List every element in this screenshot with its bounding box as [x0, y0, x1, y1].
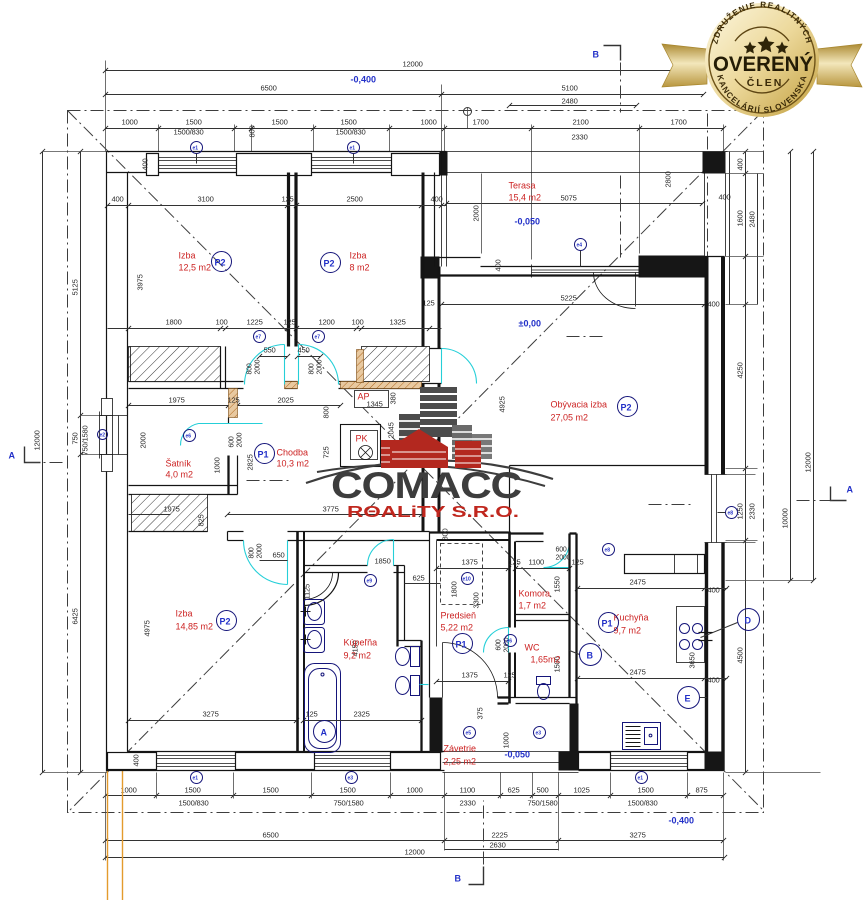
svg-text:P1: P1	[258, 450, 269, 460]
svg-text:450: 450	[298, 346, 310, 355]
svg-text:2480: 2480	[748, 211, 757, 227]
svg-text:14,85 m2: 14,85 m2	[176, 622, 214, 632]
svg-text:1600: 1600	[736, 210, 745, 226]
svg-text:1500: 1500	[340, 786, 356, 795]
svg-text:1375: 1375	[462, 671, 478, 680]
svg-text:800: 800	[322, 406, 331, 418]
svg-text:RΘALiTY S.R.O.: RΘALiTY S.R.O.	[347, 504, 519, 521]
svg-text:1800: 1800	[166, 318, 182, 327]
svg-text:3275: 3275	[203, 710, 219, 719]
svg-text:1550: 1550	[553, 576, 562, 592]
svg-text:B: B	[587, 651, 594, 661]
svg-text:12000: 12000	[403, 60, 423, 69]
svg-text:1225: 1225	[247, 318, 263, 327]
svg-text:1975: 1975	[164, 505, 180, 514]
svg-text:4,0 m2: 4,0 m2	[166, 470, 194, 480]
svg-text:P2: P2	[215, 258, 226, 268]
svg-text:Terasa: Terasa	[509, 181, 536, 191]
svg-text:6500: 6500	[263, 831, 279, 840]
svg-text:P2: P2	[324, 259, 335, 269]
svg-text:Komora: Komora	[519, 589, 551, 599]
svg-text:825: 825	[197, 514, 206, 526]
svg-text:1500/830: 1500/830	[628, 799, 658, 808]
svg-text:4250: 4250	[736, 362, 745, 378]
svg-text:2025: 2025	[278, 396, 294, 405]
svg-text:e7: e7	[256, 335, 262, 341]
svg-text:875: 875	[696, 786, 708, 795]
svg-text:100: 100	[352, 318, 364, 327]
svg-text:400: 400	[736, 158, 745, 170]
svg-text:e7: e7	[315, 335, 321, 341]
svg-text:5100: 5100	[562, 84, 578, 93]
svg-text:2000: 2000	[139, 432, 148, 448]
svg-text:B: B	[593, 50, 600, 60]
svg-text:2475: 2475	[630, 578, 646, 587]
svg-text:e4: e4	[577, 243, 583, 249]
svg-text:Izba: Izba	[179, 251, 196, 261]
svg-text:e2: e2	[100, 433, 106, 439]
svg-text:1,65m2: 1,65m2	[531, 655, 561, 665]
svg-text:4925: 4925	[498, 396, 507, 412]
svg-text:5225: 5225	[561, 294, 577, 303]
svg-text:1500: 1500	[638, 786, 654, 795]
svg-text:2000: 2000	[472, 205, 481, 221]
svg-text:750/1580: 750/1580	[334, 799, 364, 808]
svg-text:COMACC: COMACC	[331, 465, 521, 506]
svg-text:1000: 1000	[502, 732, 511, 748]
svg-text:650: 650	[273, 551, 285, 560]
svg-text:2480: 2480	[562, 97, 578, 106]
svg-text:WC: WC	[525, 643, 540, 653]
svg-text:5125: 5125	[71, 279, 80, 295]
svg-text:2325: 2325	[354, 710, 370, 719]
svg-text:125: 125	[282, 195, 294, 204]
svg-text:-0,050: -0,050	[505, 750, 531, 760]
svg-text:P1: P1	[602, 619, 613, 629]
svg-text:4975: 4975	[143, 620, 152, 636]
svg-text:1500: 1500	[263, 786, 279, 795]
svg-text:e1: e1	[193, 146, 199, 152]
svg-text:2000: 2000	[237, 432, 244, 447]
svg-text:1000: 1000	[213, 457, 222, 473]
svg-text:1125: 1125	[303, 584, 312, 600]
svg-text:600: 600	[229, 436, 236, 447]
svg-text:1500: 1500	[272, 118, 288, 127]
svg-text:2330: 2330	[460, 799, 476, 808]
svg-text:1500/830: 1500/830	[174, 128, 204, 137]
svg-text:1000: 1000	[407, 786, 423, 795]
svg-text:2045: 2045	[387, 422, 396, 438]
svg-text:5,22 m2: 5,22 m2	[441, 623, 474, 633]
svg-text:300: 300	[441, 528, 450, 540]
svg-text:12000: 12000	[804, 452, 813, 472]
svg-text:e1: e1	[193, 776, 199, 782]
svg-text:15,4 m2: 15,4 m2	[509, 193, 542, 203]
svg-text:375: 375	[476, 707, 485, 719]
svg-text:12000: 12000	[33, 430, 42, 450]
svg-text:1700: 1700	[671, 118, 687, 127]
svg-text:E: E	[685, 694, 691, 704]
svg-text:2800: 2800	[664, 171, 673, 187]
svg-text:±0,00: ±0,00	[519, 319, 541, 329]
svg-text:1325: 1325	[390, 318, 406, 327]
svg-text:2000: 2000	[317, 359, 324, 374]
svg-text:6425: 6425	[71, 608, 80, 624]
svg-text:2475: 2475	[630, 668, 646, 677]
svg-text:3100: 3100	[198, 195, 214, 204]
svg-text:3650: 3650	[688, 652, 697, 668]
svg-text:400: 400	[719, 193, 731, 202]
svg-text:10,3 m2: 10,3 m2	[277, 459, 310, 469]
svg-text:625: 625	[508, 786, 520, 795]
svg-text:125: 125	[509, 558, 521, 567]
svg-text:500: 500	[537, 786, 549, 795]
svg-text:1000: 1000	[122, 118, 138, 127]
svg-text:750/1580: 750/1580	[528, 799, 558, 808]
svg-text:2000: 2000	[255, 359, 262, 374]
svg-text:Chodba: Chodba	[277, 448, 309, 458]
svg-text:400: 400	[141, 158, 150, 170]
svg-text:Obývacia izba: Obývacia izba	[551, 400, 608, 410]
svg-text:2,25 m2: 2,25 m2	[444, 757, 477, 767]
svg-text:125: 125	[504, 671, 516, 680]
svg-text:380: 380	[389, 392, 398, 404]
svg-text:B: B	[455, 874, 462, 884]
svg-text:27,05 m2: 27,05 m2	[551, 413, 589, 423]
svg-text:1,7 m2: 1,7 m2	[519, 601, 547, 611]
svg-text:Kúpeľňa: Kúpeľňa	[344, 638, 378, 648]
svg-text:600: 600	[496, 639, 503, 650]
svg-text:Šatník: Šatník	[166, 459, 192, 469]
svg-text:750/1580: 750/1580	[81, 425, 90, 455]
svg-text:400: 400	[708, 300, 720, 309]
svg-text:400: 400	[708, 676, 720, 685]
svg-text:1375: 1375	[462, 558, 478, 567]
svg-text:1500: 1500	[186, 118, 202, 127]
svg-text:1800: 1800	[450, 581, 459, 597]
svg-text:PK: PK	[356, 434, 368, 444]
svg-text:e6: e6	[186, 434, 192, 440]
svg-text:550: 550	[264, 346, 276, 355]
svg-text:1975: 1975	[169, 396, 185, 405]
svg-text:A: A	[847, 485, 854, 495]
svg-text:2825: 2825	[246, 454, 255, 470]
svg-text:e5: e5	[466, 731, 472, 737]
svg-text:P1: P1	[456, 640, 467, 650]
svg-text:2330: 2330	[748, 503, 757, 519]
svg-text:P2: P2	[220, 617, 231, 627]
svg-text:e1: e1	[350, 146, 356, 152]
svg-text:400: 400	[708, 586, 720, 595]
svg-text:2000: 2000	[257, 543, 264, 558]
svg-text:1100: 1100	[460, 786, 476, 795]
svg-text:125: 125	[572, 558, 584, 567]
svg-text:-0,050: -0,050	[515, 217, 541, 227]
svg-text:10000: 10000	[781, 508, 790, 528]
svg-text:1000: 1000	[421, 118, 437, 127]
svg-text:OVERENÝ: OVERENÝ	[713, 52, 813, 76]
svg-text:Predsieň: Predsieň	[441, 611, 477, 621]
svg-text:ČLEN: ČLEN	[747, 76, 784, 89]
svg-text:1100: 1100	[529, 558, 545, 567]
svg-text:2330: 2330	[572, 133, 588, 142]
svg-text:1850: 1850	[375, 557, 391, 566]
svg-text:625: 625	[413, 574, 425, 583]
svg-text:2000: 2000	[556, 555, 571, 562]
svg-text:600: 600	[556, 547, 567, 554]
svg-text:1025: 1025	[574, 786, 590, 795]
svg-text:400: 400	[112, 195, 124, 204]
svg-text:e3: e3	[348, 776, 354, 782]
svg-text:P2: P2	[621, 403, 632, 413]
svg-text:e10: e10	[463, 577, 472, 583]
svg-text:e1: e1	[638, 776, 644, 782]
svg-text:9,2 m2: 9,2 m2	[344, 651, 372, 661]
svg-text:12,5 m2: 12,5 m2	[179, 263, 212, 273]
svg-text:8 m2: 8 m2	[350, 263, 370, 273]
svg-text:2225: 2225	[492, 831, 508, 840]
svg-text:800: 800	[249, 547, 256, 558]
svg-text:6500: 6500	[261, 84, 277, 93]
svg-text:12000: 12000	[405, 848, 425, 857]
svg-text:A: A	[321, 728, 328, 738]
svg-text:2100: 2100	[573, 118, 589, 127]
svg-text:3275: 3275	[630, 831, 646, 840]
svg-text:125: 125	[228, 396, 240, 405]
svg-text:D: D	[745, 616, 752, 626]
svg-text:400: 400	[132, 754, 141, 766]
svg-text:Izba: Izba	[350, 251, 367, 261]
svg-text:e3: e3	[536, 731, 542, 737]
svg-text:-0,400: -0,400	[351, 75, 377, 85]
svg-text:1700: 1700	[473, 118, 489, 127]
svg-text:1500/830: 1500/830	[336, 128, 366, 137]
svg-text:800: 800	[247, 363, 254, 374]
svg-text:725: 725	[322, 446, 331, 458]
svg-text:3300: 3300	[472, 592, 481, 608]
svg-text:Závetrie: Závetrie	[444, 744, 477, 754]
svg-text:1250: 1250	[736, 503, 745, 519]
svg-text:125: 125	[284, 318, 296, 327]
svg-text:800: 800	[248, 125, 257, 137]
svg-text:-0,400: -0,400	[669, 816, 695, 826]
svg-text:e6: e6	[507, 639, 513, 645]
svg-text:400: 400	[431, 195, 443, 204]
svg-text:800: 800	[309, 363, 316, 374]
svg-text:Izba: Izba	[176, 609, 193, 619]
svg-text:1500/830: 1500/830	[179, 799, 209, 808]
svg-text:1500: 1500	[341, 118, 357, 127]
svg-text:1500: 1500	[185, 786, 201, 795]
svg-text:e9: e9	[367, 579, 373, 585]
svg-text:2630: 2630	[490, 841, 506, 850]
svg-text:e8: e8	[728, 511, 734, 517]
svg-text:A: A	[9, 451, 16, 461]
svg-text:125: 125	[306, 710, 318, 719]
svg-text:750: 750	[71, 432, 80, 444]
svg-text:e8: e8	[605, 548, 611, 554]
svg-text:1345: 1345	[367, 400, 383, 409]
svg-text:4500: 4500	[736, 647, 745, 663]
svg-text:5075: 5075	[561, 194, 577, 203]
svg-text:2500: 2500	[347, 195, 363, 204]
svg-text:400: 400	[494, 259, 503, 271]
svg-text:1200: 1200	[319, 318, 335, 327]
svg-text:3975: 3975	[136, 274, 145, 290]
svg-text:100: 100	[216, 318, 228, 327]
